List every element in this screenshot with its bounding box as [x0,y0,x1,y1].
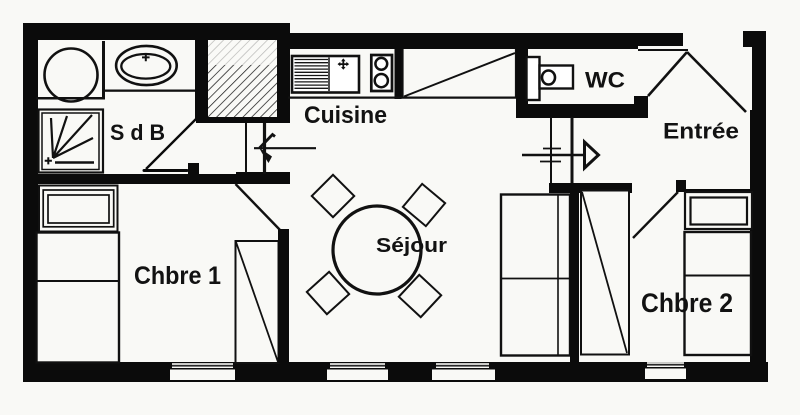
svg-text:Chbre 2: Chbre 2 [641,288,733,318]
svg-text:Cuisine: Cuisine [304,102,387,129]
svg-text:S d B: S d B [110,120,165,145]
svg-text:Entrée: Entrée [663,119,739,144]
svg-text:Séjour: Séjour [376,235,447,257]
svg-text:WC: WC [585,68,625,93]
svg-text:Chbre 1: Chbre 1 [134,262,221,290]
